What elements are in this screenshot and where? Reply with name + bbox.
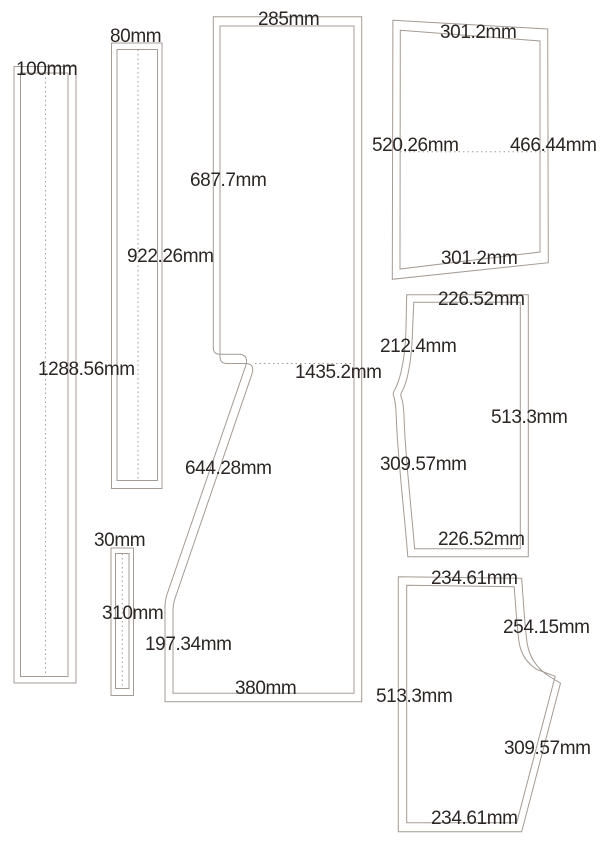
- dim-label-legleft-lower-left: 309.57mm: [380, 455, 467, 474]
- dim-label-strip80-width: 80mm: [110, 27, 161, 46]
- dim-label-strip100-length: 1288.56mm: [38, 360, 135, 379]
- dim-label-legright-bottom-width: 234.61mm: [431, 809, 518, 828]
- main-panel-outer-outline: [165, 17, 362, 702]
- piece-main-panel: [165, 17, 362, 702]
- dim-label-legleft-bottom-width: 226.52mm: [438, 530, 525, 549]
- dim-label-main-upper-length: 687.7mm: [190, 171, 266, 190]
- dim-label-main-top-width: 285mm: [258, 10, 319, 29]
- dim-label-side-top-width: 301.2mm: [440, 23, 516, 42]
- dim-label-legleft-upper-left: 212.4mm: [380, 337, 456, 356]
- dim-label-side-right-length: 466.44mm: [510, 136, 597, 155]
- dim-label-strip30-length: 310mm: [102, 604, 163, 623]
- dim-label-main-lower-side: 197.34mm: [145, 635, 232, 654]
- dim-label-legright-top-width: 234.61mm: [431, 569, 518, 588]
- pattern-sheet: 100mm 1288.56mm 80mm 922.26mm 30mm 310mm…: [0, 0, 600, 843]
- dim-label-legright-left-length: 513.3mm: [376, 687, 452, 706]
- dim-label-side-bottom-width: 301.2mm: [441, 249, 517, 268]
- dim-label-legright-lower-right: 309.57mm: [504, 739, 591, 758]
- dim-label-strip30-width: 30mm: [94, 531, 145, 550]
- dim-label-main-overall-length: 1435.2mm: [295, 363, 382, 382]
- dim-label-legright-upper-right: 254.15mm: [503, 618, 590, 637]
- dim-label-main-bottom-width: 380mm: [235, 679, 296, 698]
- main-panel-inner-outline: [173, 26, 354, 693]
- dim-label-legleft-top-width: 226.52mm: [438, 290, 525, 309]
- dim-label-legleft-right-length: 513.3mm: [491, 408, 567, 427]
- dim-label-main-slant-length: 644.28mm: [185, 459, 272, 478]
- dim-label-strip100-width: 100mm: [16, 60, 77, 79]
- dim-label-side-left-length: 520.26mm: [372, 136, 459, 155]
- dim-label-strip80-length: 922.26mm: [127, 247, 214, 266]
